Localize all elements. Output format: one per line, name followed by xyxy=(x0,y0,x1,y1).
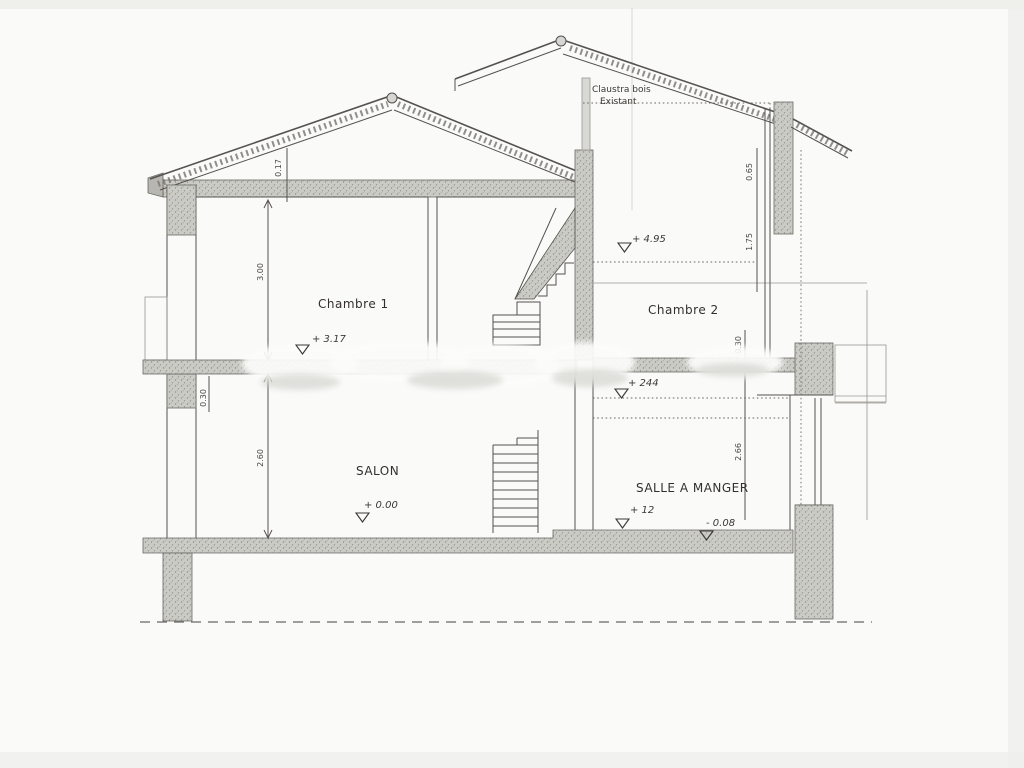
ground-structure xyxy=(140,505,872,622)
right-annex-box xyxy=(835,290,886,520)
section-drawing: 0.17 3.00 2.60 0.30 0.65 1.75 0.30 2.66 xyxy=(0,0,1024,768)
level-ground-sam-left: + 12 xyxy=(616,505,654,528)
room-label-chambre2: Chambre 2 xyxy=(648,303,719,317)
staircase-upper xyxy=(493,208,575,345)
dim-roof-slab: 0.17 xyxy=(274,159,283,177)
svg-text:+ 0.00: + 0.00 xyxy=(364,500,398,511)
svg-text:+ 3.17: + 3.17 xyxy=(312,334,346,345)
staircase-lower xyxy=(493,430,538,533)
claustra-note-line2: Existant xyxy=(600,97,637,107)
dim-salon-height: 2.60 xyxy=(256,449,265,467)
svg-text:+ 4.95: + 4.95 xyxy=(632,234,666,245)
ridge-finial-left xyxy=(387,93,397,103)
ground-slab xyxy=(143,530,793,553)
claustra-note-line1: Claustra bois xyxy=(592,85,651,95)
room-label-chambre1: Chambre 1 xyxy=(318,297,389,311)
party-wall xyxy=(575,78,593,538)
dim-right-upper: 1.75 xyxy=(745,233,754,251)
dim-right-lower: 2.66 xyxy=(734,443,743,461)
room-label-salle-a-manger: SALLE A MANGER xyxy=(636,481,749,495)
balcony-rail xyxy=(145,297,167,360)
roof-right-slope xyxy=(394,96,579,182)
scan-smudge xyxy=(242,341,783,390)
room-label-salon: SALON xyxy=(356,464,399,478)
svg-text:+ 12: + 12 xyxy=(630,505,654,516)
svg-text:+ 244: + 244 xyxy=(628,378,659,389)
level-ground-salon: + 0.00 xyxy=(356,500,398,522)
left-building xyxy=(143,93,579,553)
svg-text:- 0.08: - 0.08 xyxy=(706,518,735,529)
dim-chambre1-height: 3.00 xyxy=(256,263,265,281)
right-roof xyxy=(455,36,852,234)
dimension-lines: 0.17 3.00 2.60 0.30 0.65 1.75 0.30 2.66 xyxy=(199,148,757,538)
roof-left-slope xyxy=(150,96,392,190)
dim-slab-left: 0.30 xyxy=(199,389,208,407)
scanned-page: 0.17 3.00 2.60 0.30 0.65 1.75 0.30 2.66 xyxy=(0,0,1024,768)
parapet-wall xyxy=(774,102,793,234)
partition-wall xyxy=(428,197,437,360)
ceiling-slab-left xyxy=(163,180,577,197)
level-ceiling-right: + 4.95 xyxy=(618,234,666,252)
claustra-post xyxy=(582,78,590,150)
dim-right-top: 0.65 xyxy=(745,163,754,181)
right-footing xyxy=(795,505,833,619)
left-footing xyxy=(163,553,192,621)
